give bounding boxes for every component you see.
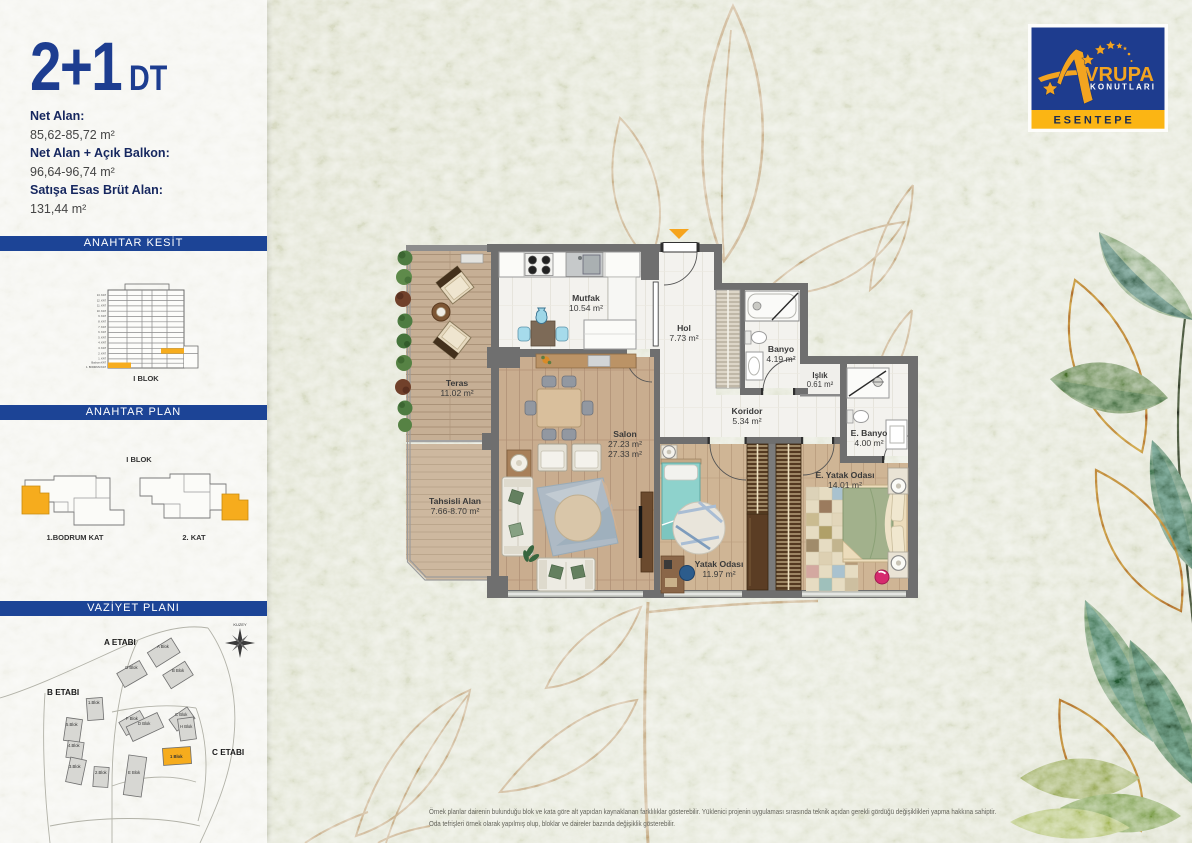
svg-text:4. KAT: 4. KAT bbox=[98, 341, 106, 345]
svg-text:6. KAT: 6. KAT bbox=[98, 330, 106, 334]
svg-text:KONUTLARI: KONUTLARI bbox=[1090, 83, 1154, 92]
svg-text:7. KAT: 7. KAT bbox=[98, 325, 106, 329]
svg-text:I BLOK: I BLOK bbox=[133, 374, 159, 383]
svg-text:E. Yatak Odası: E. Yatak Odası bbox=[815, 470, 874, 480]
svg-text:Salon: Salon bbox=[613, 429, 636, 439]
svg-text:Mutfak: Mutfak bbox=[572, 293, 600, 303]
svg-text:Teras: Teras bbox=[446, 378, 469, 388]
svg-text:5. KAT: 5. KAT bbox=[98, 335, 106, 339]
svg-text:Banyo: Banyo bbox=[768, 344, 794, 354]
svg-text:Bodrum KAT: Bodrum KAT bbox=[91, 361, 106, 365]
svg-text:5.34 m²: 5.34 m² bbox=[732, 416, 761, 426]
svg-text:11. KAT: 11. KAT bbox=[97, 304, 106, 308]
svg-text:9. KAT: 9. KAT bbox=[98, 314, 106, 318]
svg-text:D Blok: D Blok bbox=[138, 721, 151, 726]
svg-text:E Blok: E Blok bbox=[128, 770, 141, 775]
svg-text:A Blok: A Blok bbox=[157, 644, 170, 649]
svg-text:Işlık: Işlık bbox=[812, 371, 828, 380]
svg-text:11.97 m²: 11.97 m² bbox=[702, 569, 735, 579]
svg-text:27.33 m²: 27.33 m² bbox=[608, 449, 642, 459]
svg-text:A ETABI: A ETABI bbox=[104, 638, 136, 647]
svg-text:KUZEY: KUZEY bbox=[233, 622, 247, 627]
svg-text:E. Banyo: E. Banyo bbox=[851, 428, 888, 438]
svg-text:Hol: Hol bbox=[677, 323, 691, 333]
svg-text:2.Blok: 2.Blok bbox=[95, 770, 108, 775]
svg-text:Koridor: Koridor bbox=[731, 406, 763, 416]
svg-text:2. KAT: 2. KAT bbox=[98, 351, 106, 355]
svg-text:1 Blok: 1 Blok bbox=[170, 754, 183, 759]
svg-text:Tahsisli Alan: Tahsisli Alan bbox=[429, 496, 481, 506]
svg-text:0.61 m²: 0.61 m² bbox=[807, 380, 834, 389]
svg-text:1. KAT: 1. KAT bbox=[98, 357, 106, 361]
svg-text:4.19 m²: 4.19 m² bbox=[766, 354, 795, 364]
svg-text:2. KAT: 2. KAT bbox=[182, 533, 206, 542]
svg-text:C Blok: C Blok bbox=[175, 712, 188, 717]
svg-text:B Blok: B Blok bbox=[172, 668, 185, 673]
svg-text:4.00 m²: 4.00 m² bbox=[854, 438, 883, 448]
svg-text:F Blok: F Blok bbox=[126, 716, 139, 721]
svg-text:1.Blok: 1.Blok bbox=[88, 700, 101, 705]
svg-text:G Blok: G Blok bbox=[125, 665, 138, 670]
svg-text:11.02 m²: 11.02 m² bbox=[440, 388, 473, 398]
svg-text:1. BODRUM KAT: 1. BODRUM KAT bbox=[86, 365, 106, 369]
svg-text:3. KAT: 3. KAT bbox=[98, 346, 106, 350]
svg-text:4.Blok: 4.Blok bbox=[68, 743, 81, 748]
svg-text:I BLOK: I BLOK bbox=[126, 455, 152, 464]
svg-text:7.73 m²: 7.73 m² bbox=[669, 333, 698, 343]
svg-text:14.01 m²: 14.01 m² bbox=[828, 480, 862, 490]
svg-text:5.Blok: 5.Blok bbox=[66, 722, 79, 727]
svg-text:12. KAT: 12. KAT bbox=[97, 298, 107, 302]
svg-text:7.66-8.70 m²: 7.66-8.70 m² bbox=[431, 506, 480, 516]
svg-text:3.Blok: 3.Blok bbox=[69, 764, 82, 769]
svg-text:13. KAT: 13. KAT bbox=[97, 293, 107, 297]
svg-text:B ETABI: B ETABI bbox=[47, 688, 79, 697]
svg-text:Yatak Odası: Yatak Odası bbox=[695, 559, 744, 569]
svg-text:1.BODRUM KAT: 1.BODRUM KAT bbox=[47, 533, 104, 542]
svg-text:10. KAT: 10. KAT bbox=[97, 309, 107, 313]
svg-text:ESENTEPE: ESENTEPE bbox=[1053, 115, 1134, 127]
svg-text:C ETABI: C ETABI bbox=[212, 748, 244, 757]
svg-text:10.54 m²: 10.54 m² bbox=[569, 303, 603, 313]
svg-text:27.23 m²: 27.23 m² bbox=[608, 439, 642, 449]
svg-text:8. KAT: 8. KAT bbox=[98, 320, 106, 324]
svg-text:H Blok: H Blok bbox=[180, 724, 193, 729]
